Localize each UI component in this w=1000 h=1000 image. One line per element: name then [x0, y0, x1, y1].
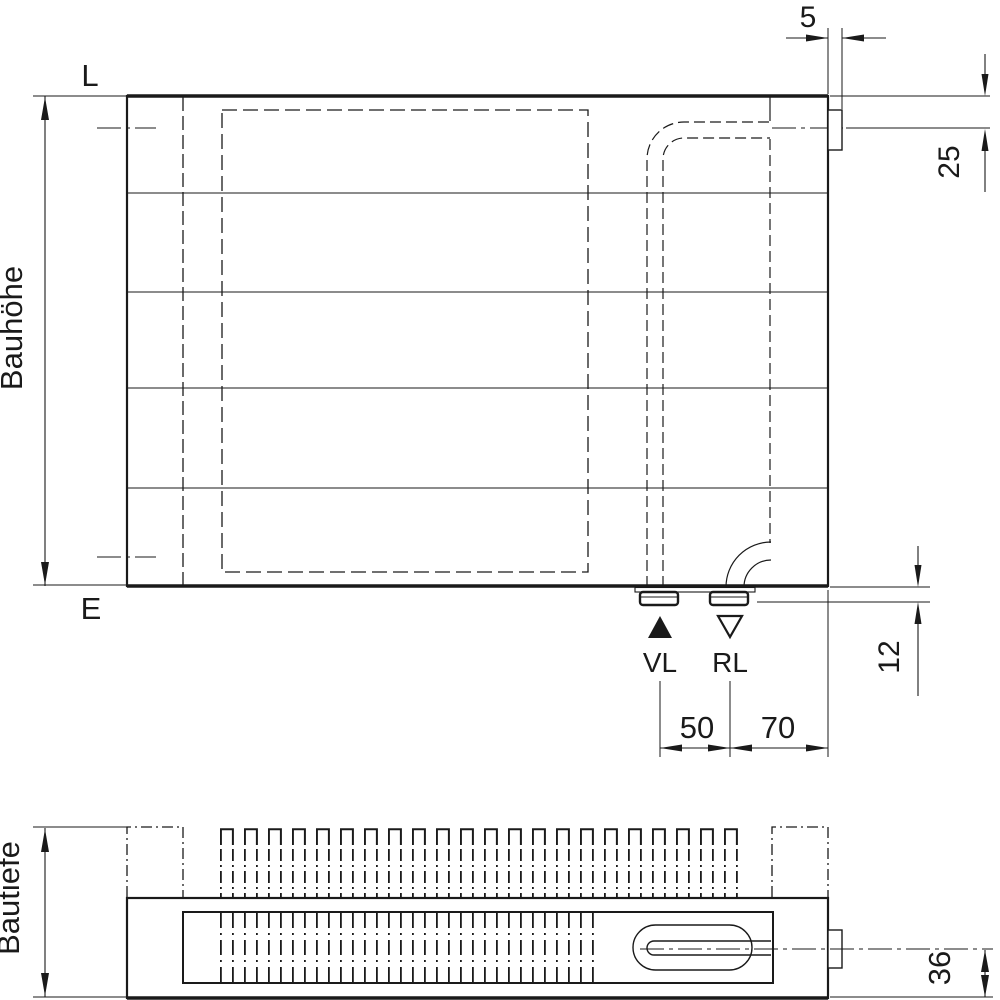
dim-70-label: 70 [761, 710, 795, 745]
bautiefe-label: Bautiefe [0, 841, 26, 955]
bauhoehe-label: Bauhöhe [0, 266, 29, 390]
rl-nozzle [710, 592, 748, 605]
convector-fins-top [220, 828, 738, 898]
dim-12-label: 12 [873, 640, 906, 673]
level-l-label: L [81, 58, 98, 93]
radiator-outline [127, 96, 828, 586]
radiator-technical-drawing: VL RL Bauhöhe L E 5 [0, 0, 1000, 1000]
dim-36-label: 36 [922, 951, 957, 985]
vl-label: VL [643, 647, 677, 678]
level-e-label: E [81, 591, 102, 626]
vl-nozzle [640, 592, 678, 605]
rl-label: RL [712, 647, 748, 678]
radiator-body-front [127, 96, 828, 586]
drawing-canvas: VL RL Bauhöhe L E 5 [0, 0, 1000, 1000]
convector-fins-hidden [220, 913, 594, 983]
pocket-outline [633, 925, 752, 970]
dim-5-label: 5 [800, 1, 817, 34]
side-connection-tab [828, 110, 842, 150]
dim-25-label: 25 [933, 145, 966, 178]
dim-50-label: 50 [680, 710, 714, 745]
